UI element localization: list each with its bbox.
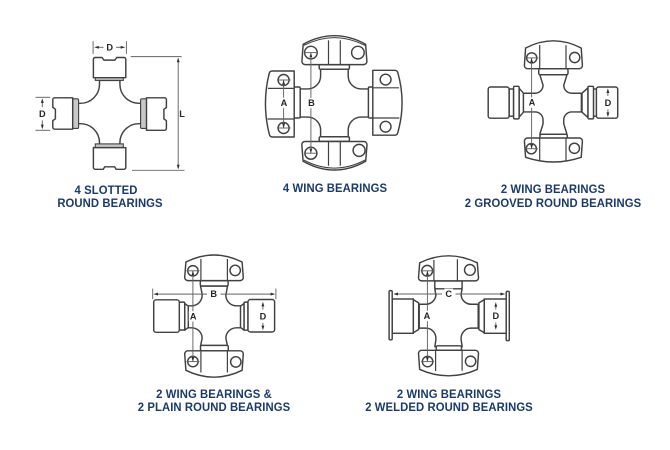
svg-text:D: D: [39, 109, 46, 119]
svg-text:L: L: [179, 109, 185, 119]
svg-text:C: C: [445, 289, 452, 299]
svg-text:D: D: [605, 98, 612, 108]
svg-text:B: B: [210, 289, 217, 299]
svg-text:D: D: [260, 311, 267, 321]
svg-text:B: B: [308, 98, 315, 108]
svg-text:A: A: [529, 98, 536, 108]
svg-text:D: D: [106, 42, 113, 52]
svg-text:A: A: [190, 312, 197, 322]
svg-text:A: A: [424, 311, 431, 321]
svg-text:A: A: [281, 98, 288, 108]
svg-text:D: D: [492, 311, 499, 321]
